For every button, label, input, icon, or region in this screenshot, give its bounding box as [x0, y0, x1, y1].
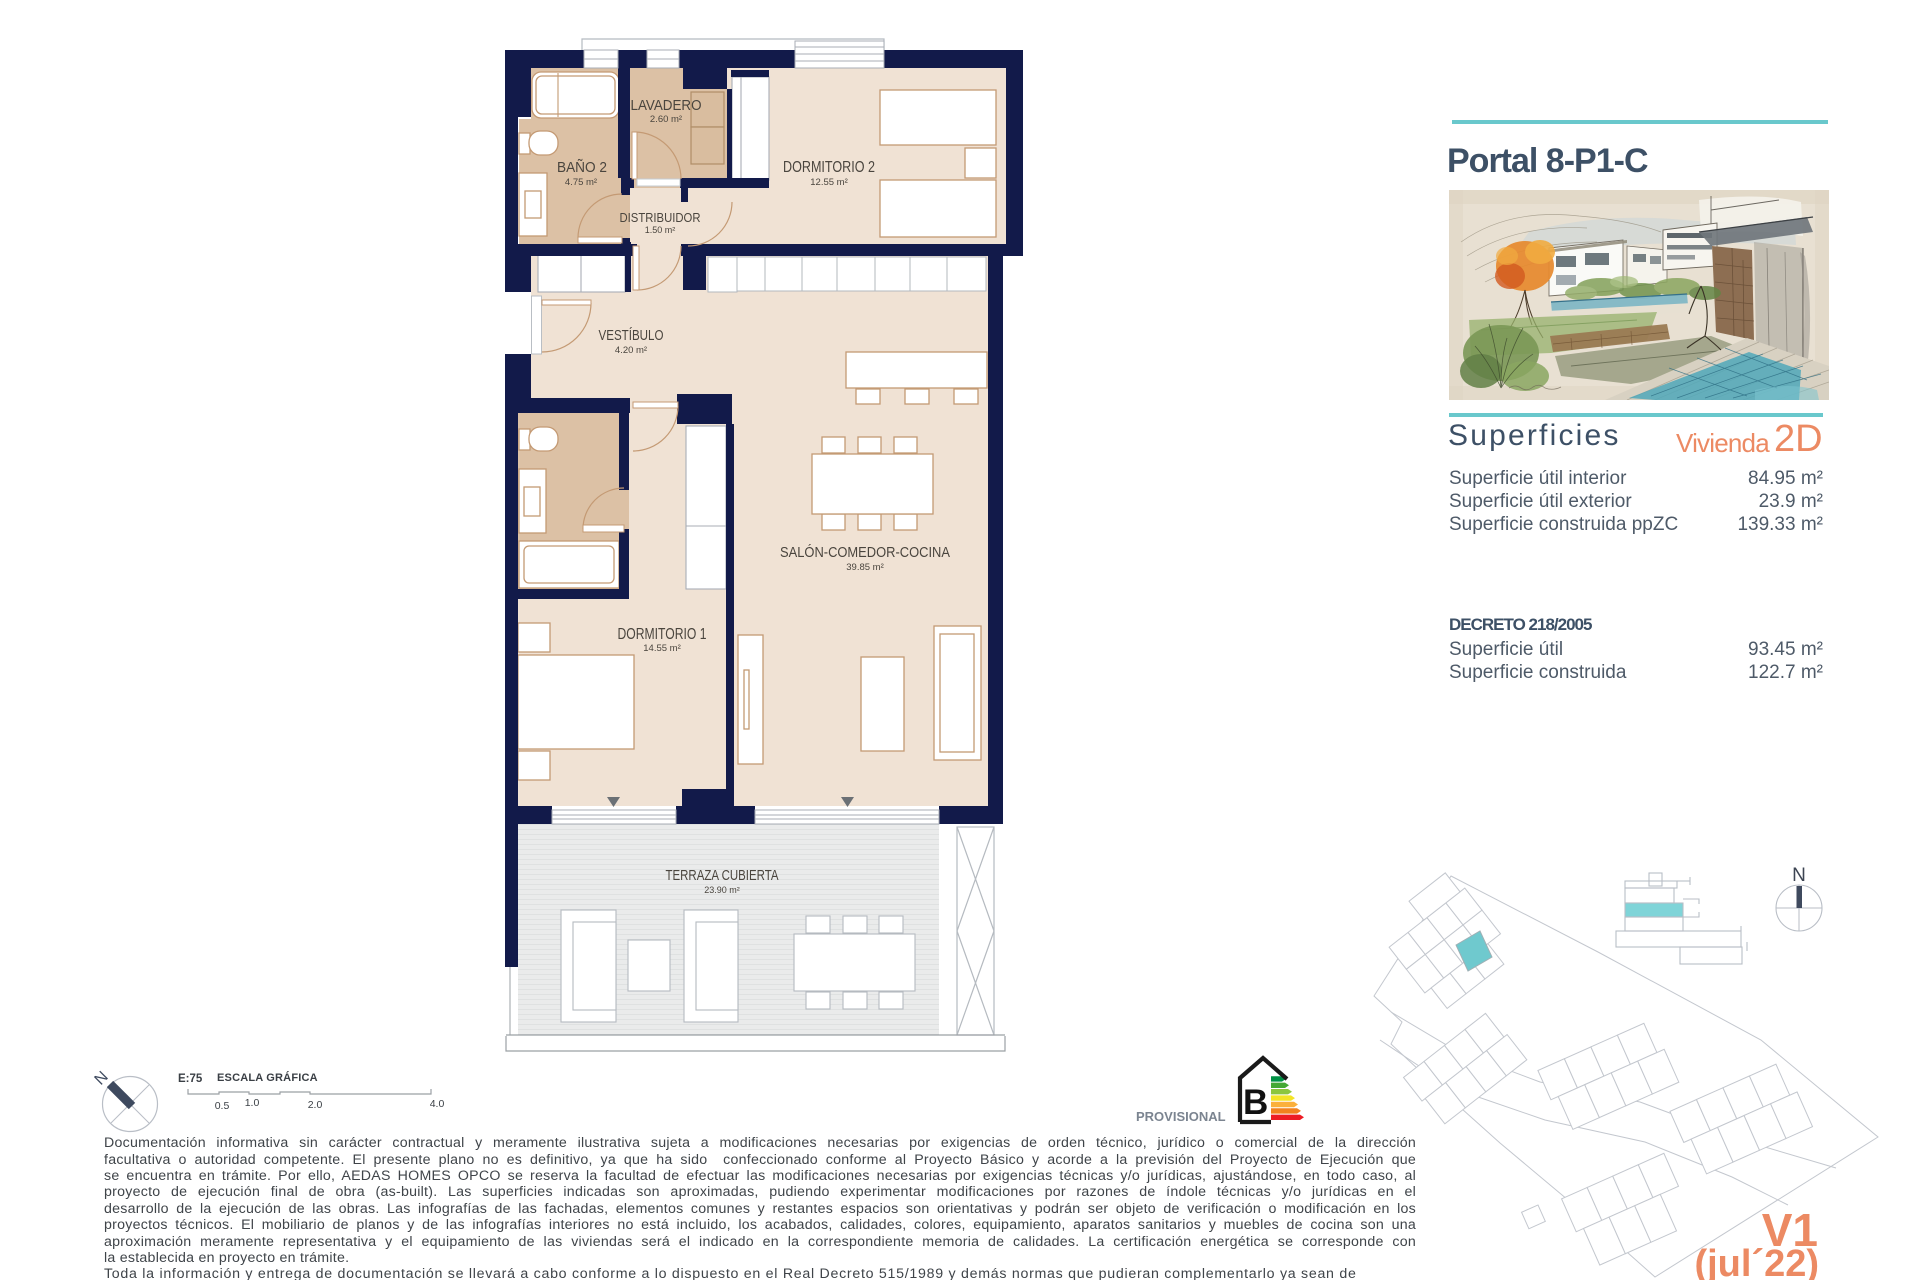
svg-text:1.0: 1.0	[245, 1097, 260, 1109]
svg-text:(jul´22): (jul´22)	[1694, 1243, 1819, 1280]
svg-text:ESCALA GRÁFICA: ESCALA GRÁFICA	[217, 1071, 318, 1084]
svg-text:E:75: E:75	[178, 1073, 203, 1085]
svg-text:B: B	[1243, 1083, 1268, 1122]
svg-text:0.5: 0.5	[215, 1100, 230, 1112]
svg-text:4.0: 4.0	[430, 1098, 445, 1110]
svg-text:2.0: 2.0	[308, 1099, 323, 1111]
svg-text:N: N	[1792, 865, 1806, 886]
